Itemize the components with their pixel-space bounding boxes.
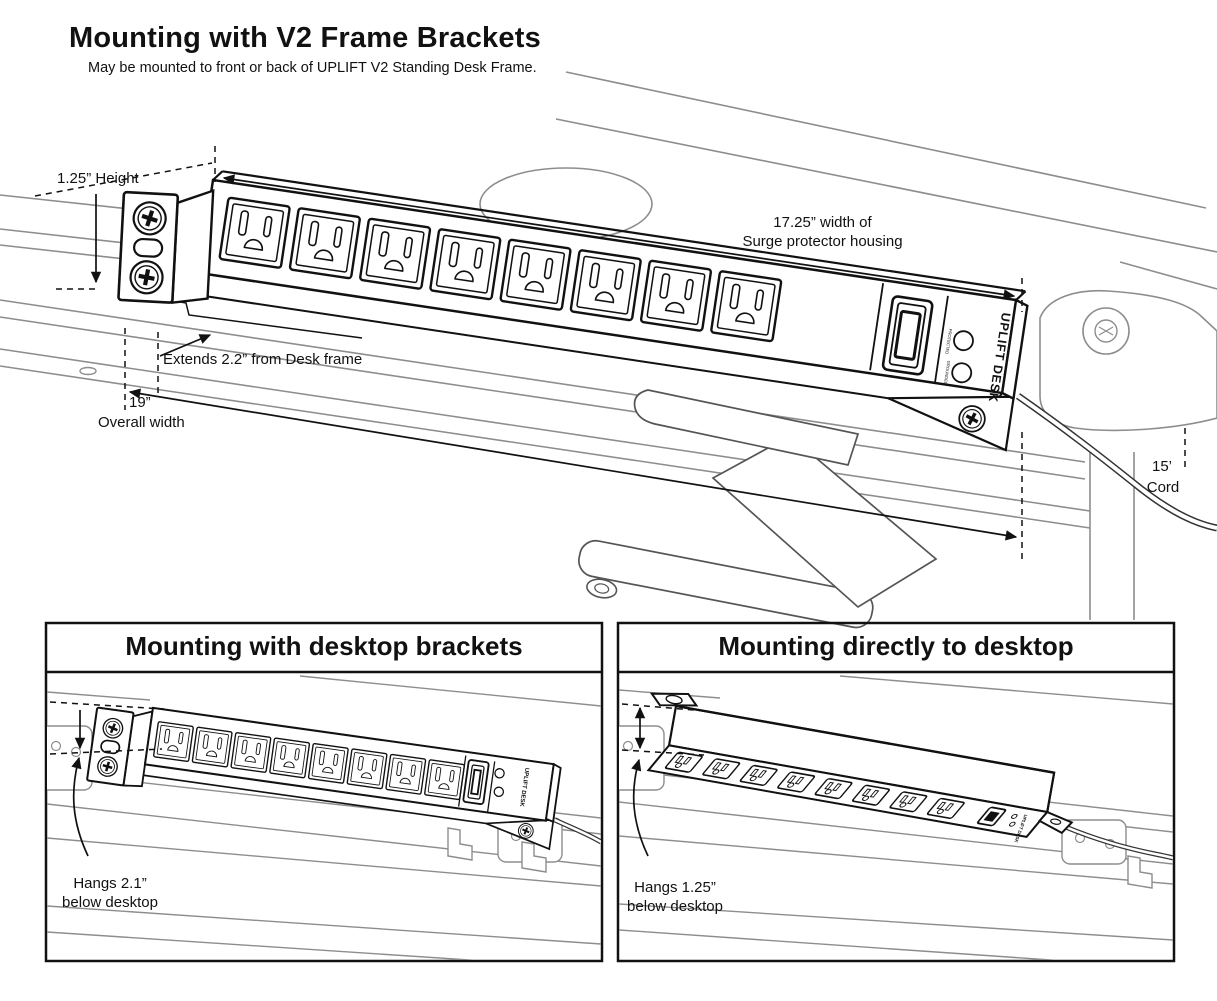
cord-length-value: 15’ — [1142, 458, 1182, 477]
hang-label-left-line1: Hangs 2.1” — [35, 875, 185, 894]
panel-right-illustration: UPLIFT DESK — [612, 676, 1173, 962]
housing-width-line2: Surge protector housing — [690, 233, 955, 252]
housing-width-label: 17.25” width of Surge protector housing — [690, 214, 955, 252]
outlet-icon — [347, 749, 387, 789]
desk-leg — [573, 390, 936, 649]
cord-caption: Cord — [1133, 479, 1193, 498]
outlet-icon — [231, 733, 271, 773]
outlet-icon — [153, 722, 193, 762]
outlet-icon — [192, 727, 232, 767]
outlet-icon — [425, 760, 465, 800]
housing-width-line1: 17.25” width of — [690, 214, 955, 233]
outlet-icon — [219, 197, 289, 267]
extends-dimension-label: Extends 2.2” from Desk frame — [163, 351, 362, 370]
hang-label-right: Hangs 1.25” below desktop — [600, 879, 750, 917]
outlet-icon — [308, 743, 348, 783]
overall-width-dimension-arrow — [130, 392, 1016, 537]
diagram-artwork: PROTECTED GROUNDED UPLIFT DESK — [0, 0, 1217, 1001]
outlet-icon — [270, 738, 310, 778]
outlet-icon — [500, 239, 570, 309]
diagram-page: PROTECTED GROUNDED UPLIFT DESK — [0, 0, 1217, 1001]
hang-label-right-line1: Hangs 1.25” — [600, 879, 750, 898]
frame-bracket — [118, 186, 213, 305]
panel-right-housing: UPLIFT DESK — [637, 688, 1082, 853]
panel-left-strip: UPLIFT DESK — [86, 700, 561, 849]
outlet-icon — [430, 229, 500, 299]
panel-left-illustration: UPLIFT DESK — [40, 676, 601, 962]
outlet-icon — [571, 250, 641, 320]
hang-label-left-line2: below desktop — [35, 894, 185, 913]
outlet-icon — [711, 271, 781, 341]
outlet-icon — [386, 754, 426, 794]
overall-width-caption: Overall width — [98, 414, 185, 433]
height-dimension-label: 1.25” Height — [57, 170, 139, 189]
page-title: Mounting with V2 Frame Brackets — [69, 22, 541, 55]
outlet-icon — [290, 208, 360, 278]
hang-label-left: Hangs 2.1” below desktop — [35, 875, 185, 913]
panel-right-title: Mounting directly to desktop — [619, 631, 1173, 662]
hang-label-right-line2: below desktop — [600, 898, 750, 917]
bracket-slot — [134, 239, 163, 257]
page-subtitle: May be mounted to front or back of UPLIF… — [88, 60, 537, 76]
panel-left-title: Mounting with desktop brackets — [47, 631, 601, 662]
outlet-icon — [360, 218, 430, 288]
outlet-icon — [641, 260, 711, 330]
desk-side-plate — [1040, 291, 1217, 620]
overall-width-value: 19” — [129, 394, 151, 413]
